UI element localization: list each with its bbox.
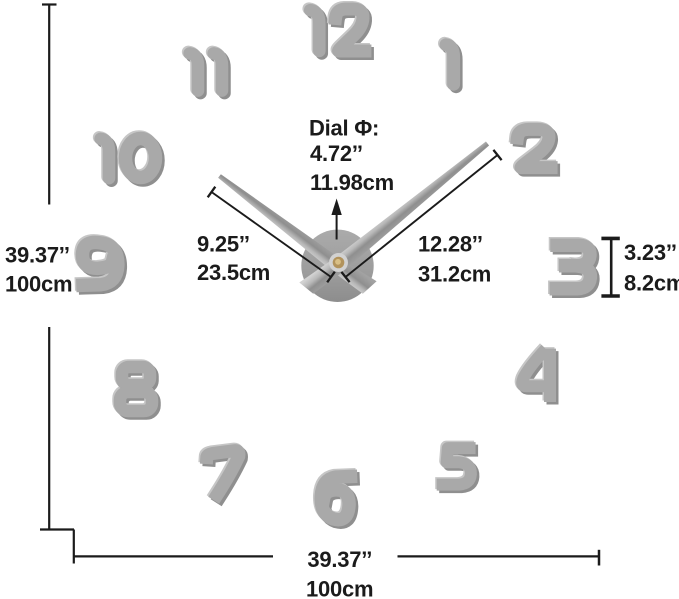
- svg-text:8.2cm: 8.2cm: [624, 271, 679, 296]
- svg-text:12.28’’: 12.28’’: [418, 232, 483, 257]
- svg-text:39.37’’: 39.37’’: [307, 547, 372, 572]
- svg-text:4.72’’: 4.72’’: [310, 141, 363, 166]
- svg-text:9.25’’: 9.25’’: [197, 232, 250, 257]
- svg-text:100cm: 100cm: [5, 272, 72, 297]
- svg-text:Dial Φ:: Dial Φ:: [309, 115, 379, 140]
- svg-text:11.98cm: 11.98cm: [310, 170, 394, 195]
- svg-text:3.23’’: 3.23’’: [624, 240, 677, 265]
- svg-text:39.37’’: 39.37’’: [5, 242, 70, 267]
- svg-text:23.5cm: 23.5cm: [197, 260, 270, 285]
- svg-text:31.2cm: 31.2cm: [418, 261, 491, 286]
- svg-text:100cm: 100cm: [306, 577, 373, 599]
